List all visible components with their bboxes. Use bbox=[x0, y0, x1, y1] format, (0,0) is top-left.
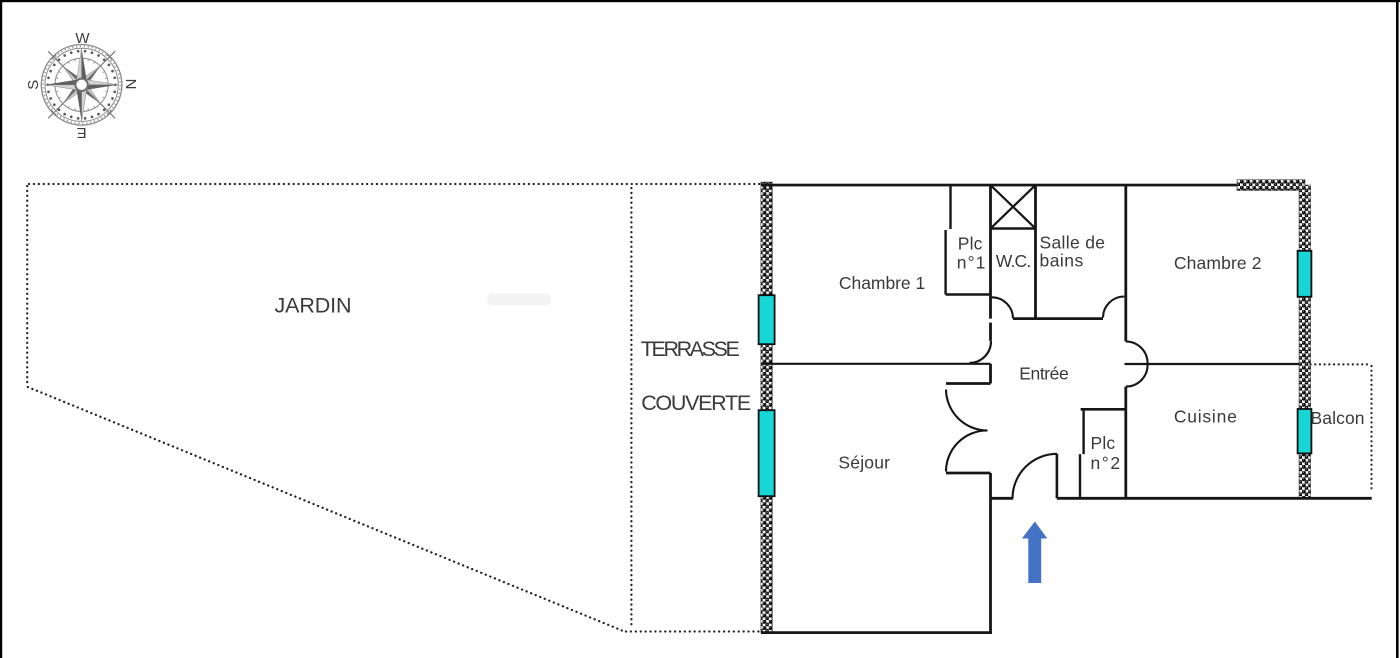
svg-text:W.C.: W.C. bbox=[996, 251, 1031, 271]
svg-text:COUVERTE: COUVERTE bbox=[641, 391, 751, 415]
svg-text:JARDIN: JARDIN bbox=[275, 294, 352, 318]
svg-text:Séjour: Séjour bbox=[838, 452, 890, 472]
svg-text:Balcon: Balcon bbox=[1311, 408, 1365, 428]
svg-text:Salle de: Salle de bbox=[1040, 232, 1106, 252]
svg-text:n°1: n°1 bbox=[957, 253, 986, 273]
svg-text:Entrée: Entrée bbox=[1019, 364, 1068, 384]
svg-text:n°2: n°2 bbox=[1091, 453, 1121, 473]
svg-text:Cuisine: Cuisine bbox=[1174, 407, 1237, 427]
svg-text:Chambre 2: Chambre 2 bbox=[1174, 253, 1262, 273]
svg-text:W: W bbox=[75, 30, 90, 47]
svg-text:Plc: Plc bbox=[958, 234, 983, 254]
svg-text:TERRASSE: TERRASSE bbox=[641, 337, 740, 361]
svg-text:N: N bbox=[122, 79, 139, 90]
svg-text:Chambre 1: Chambre 1 bbox=[839, 273, 925, 293]
svg-text:E: E bbox=[77, 124, 87, 141]
svg-text:Plc: Plc bbox=[1091, 433, 1116, 453]
svg-text:bains: bains bbox=[1040, 251, 1084, 271]
svg-text:S: S bbox=[25, 80, 42, 90]
